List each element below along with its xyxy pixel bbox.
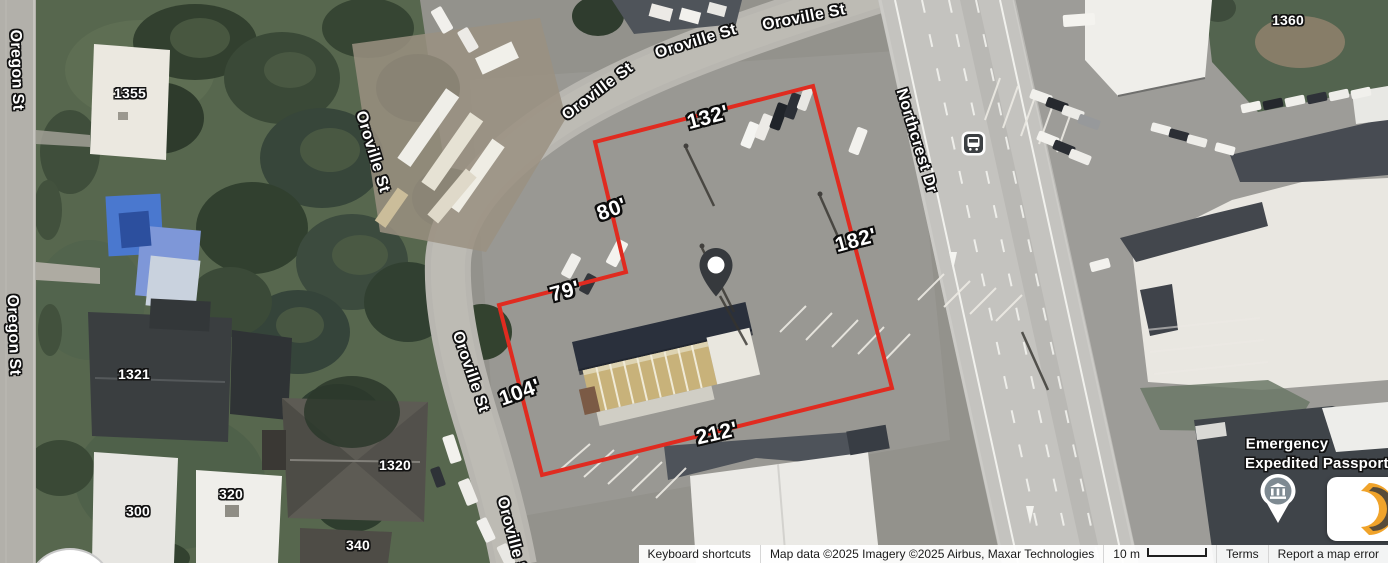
- house-number-1355: 1355: [114, 85, 146, 101]
- photo-card-graphic: [1327, 477, 1388, 541]
- map-pin-marker[interactable]: [696, 247, 736, 299]
- poi-label-line2: Expedited Passport: [1245, 455, 1388, 472]
- street-label-oregon-st-north: Oregon St: [6, 29, 27, 111]
- house-number-1360: 1360: [1272, 12, 1304, 28]
- house-number-1320: 1320: [379, 457, 411, 473]
- terms-link[interactable]: Terms: [1216, 545, 1268, 563]
- satellite-imagery: [0, 0, 1388, 563]
- map-canvas[interactable]: Oregon St Oregon St Oroville St Oroville…: [0, 0, 1388, 563]
- scale-bar: [1147, 548, 1207, 557]
- scale-label: 10 m: [1113, 547, 1140, 561]
- keyboard-shortcuts-button[interactable]: Keyboard shortcuts: [639, 545, 760, 563]
- house-number-340: 340: [346, 537, 370, 553]
- passport-poi-pin[interactable]: [1258, 472, 1298, 526]
- report-map-error-link[interactable]: Report a map error: [1268, 545, 1388, 563]
- attribution-bar: Keyboard shortcuts Map data ©2025 Imager…: [639, 545, 1388, 563]
- photo-card-control[interactable]: [1327, 477, 1388, 541]
- house-number-1321: 1321: [118, 366, 150, 382]
- house-number-300: 300: [126, 503, 150, 519]
- street-label-oregon-st-south: Oregon St: [3, 294, 24, 376]
- poi-label-line1: Emergency: [1246, 436, 1329, 453]
- scale-control: 10 m: [1103, 545, 1216, 563]
- bus-stop-icon[interactable]: [961, 131, 986, 156]
- house-number-320: 320: [219, 486, 243, 502]
- map-attribution-text: Map data ©2025 Imagery ©2025 Airbus, Max…: [760, 545, 1103, 563]
